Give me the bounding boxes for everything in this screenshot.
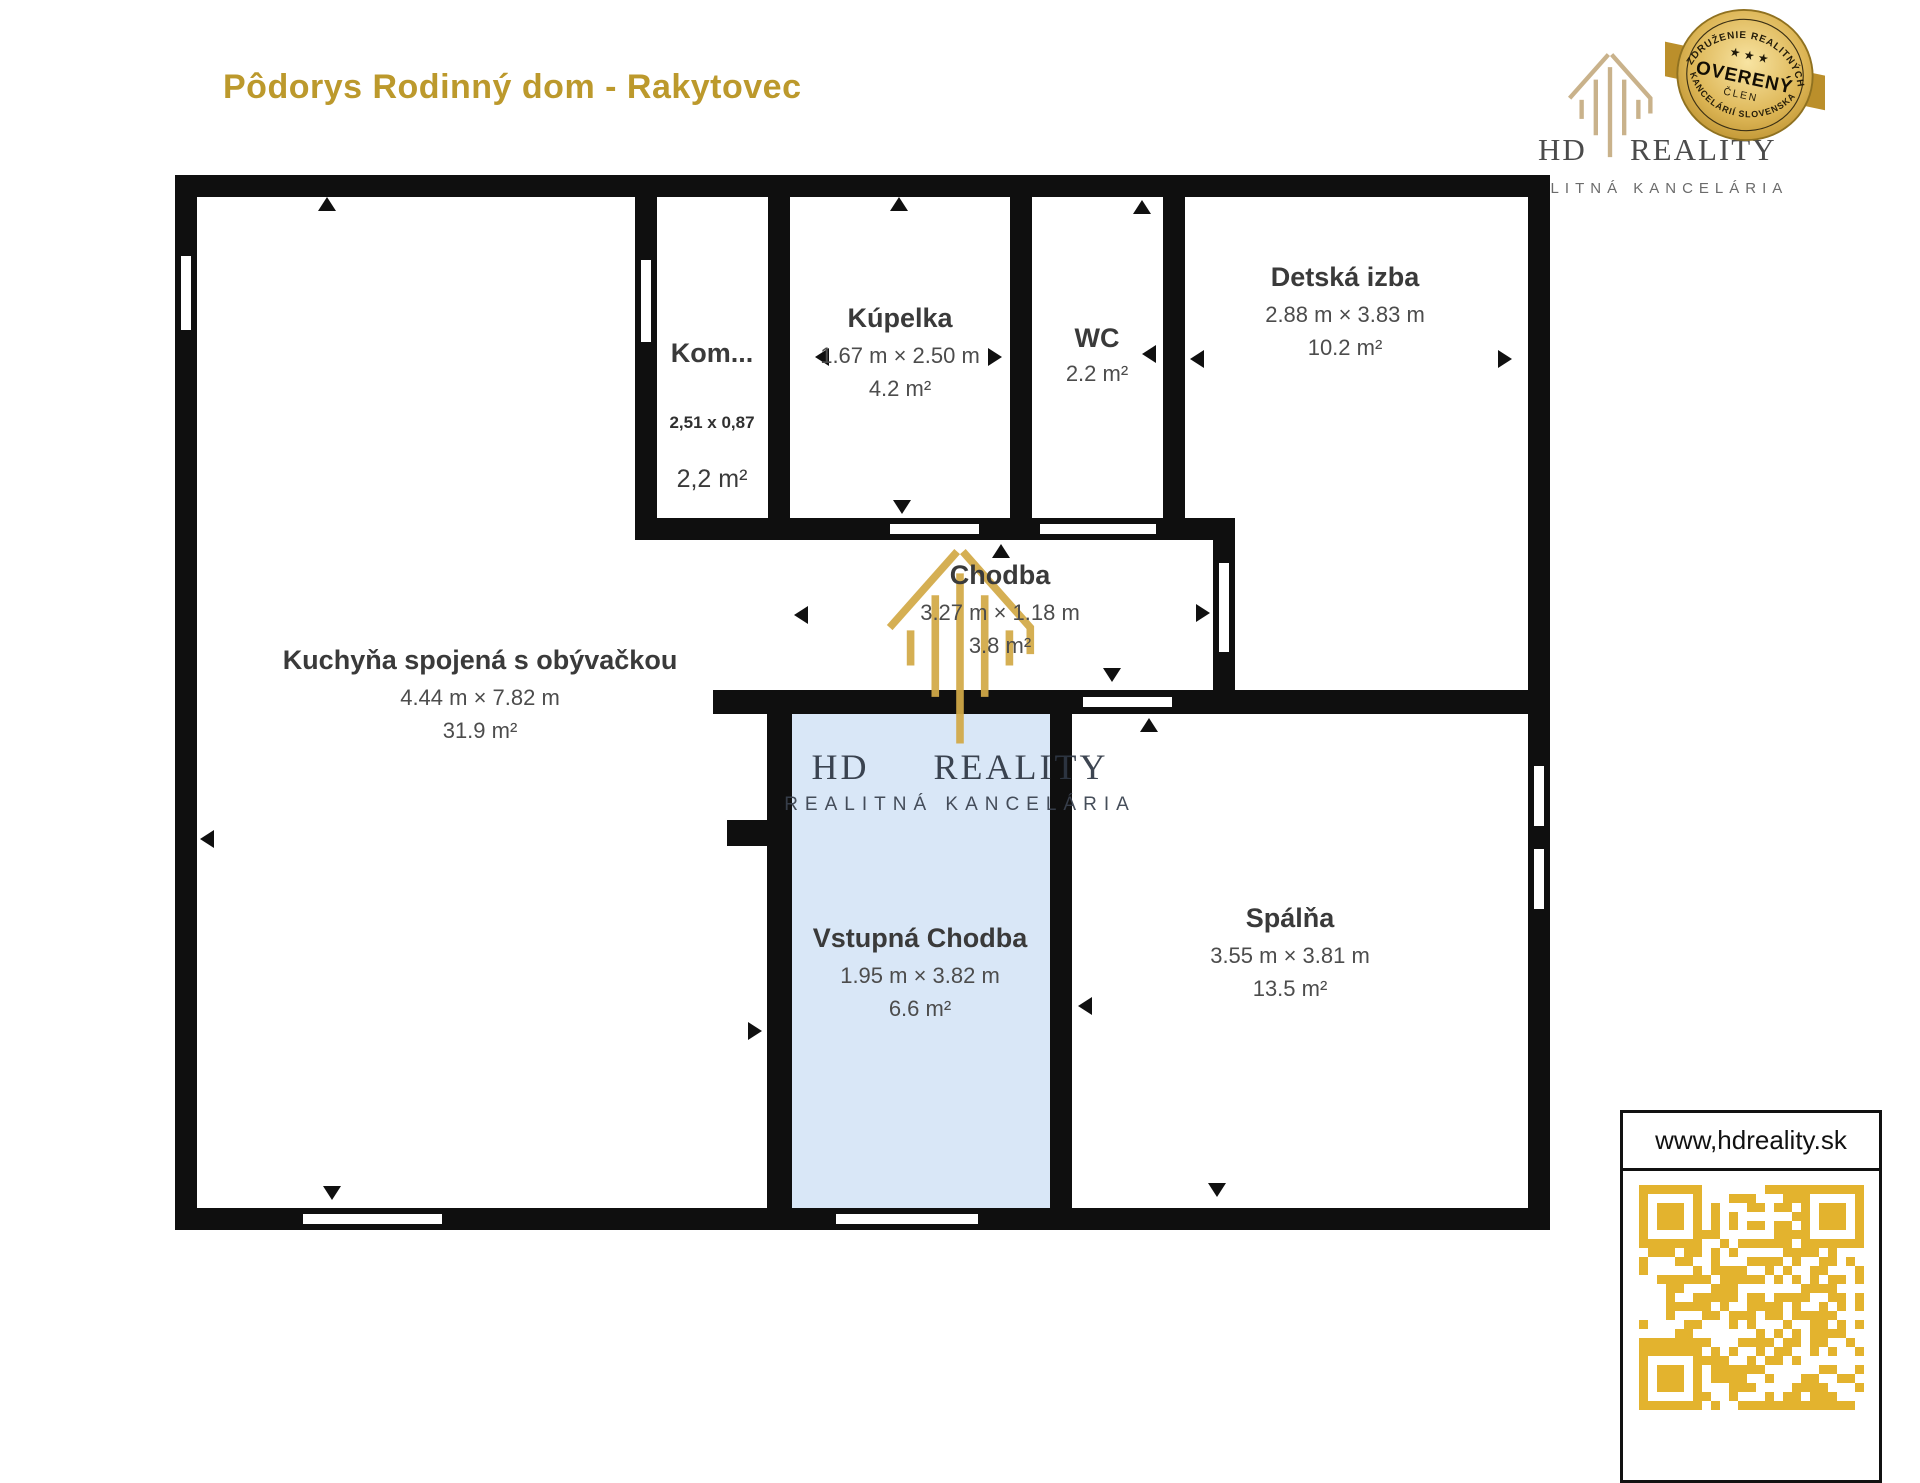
room-dimensions: 1.95 m × 3.82 m [813, 963, 1028, 989]
opening-marker-icon [200, 830, 214, 848]
room-area: 31.9 m² [283, 718, 678, 744]
room-name: Kúpelka [820, 303, 980, 334]
room-name: Spálňa [1210, 903, 1370, 934]
opening-marker-icon [1142, 345, 1156, 363]
wall [1163, 175, 1185, 540]
room-label-hallway: Chodba 3.27 m × 1.18 m 3.8 m² [920, 560, 1080, 659]
opening-marker-icon [988, 348, 1002, 366]
wall [768, 175, 790, 540]
opening-marker-icon [1078, 997, 1092, 1015]
room-dimensions: 3.27 m × 1.18 m [920, 600, 1080, 626]
room-dimensions: 2.88 m × 3.83 m [1265, 302, 1425, 328]
opening-marker-icon [1208, 1183, 1226, 1197]
room-name: Chodba [920, 560, 1080, 591]
opening-marker-icon [1133, 200, 1151, 214]
room-area: 2.2 m² [1066, 361, 1128, 387]
wall [175, 175, 1550, 197]
opening-marker-icon [1196, 604, 1210, 622]
room-label-pantry: Kom... 2,51 x 0,87 2,2 m² [669, 338, 754, 494]
room-label-kids-room: Detská izba 2.88 m × 3.83 m 10.2 m² [1265, 262, 1425, 361]
room-dimensions: 1.67 m × 2.50 m [820, 343, 980, 369]
opening-marker-icon [1498, 350, 1512, 368]
door-opening [638, 257, 654, 345]
watermark-text-hd: HD [812, 746, 870, 788]
room-name: Kom... [669, 338, 754, 369]
website-text: www,hdreality.sk [1623, 1113, 1879, 1171]
opening-marker-icon [890, 197, 908, 211]
room-area: 3.8 m² [920, 633, 1080, 659]
room-name: WC [1066, 323, 1128, 354]
qr-code [1623, 1185, 1879, 1410]
logo-text-hd: HD [1538, 132, 1587, 168]
door-opening [1037, 521, 1159, 537]
wall [1010, 175, 1032, 540]
room-label-bathroom: Kúpelka 1.67 m × 2.50 m 4.2 m² [820, 303, 980, 402]
room-dimensions: 2,51 x 0,87 [669, 413, 754, 433]
room-area: 13.5 m² [1210, 976, 1370, 1002]
watermark-text-reality: REALITY [934, 746, 1109, 788]
window [1531, 763, 1547, 829]
verified-member-badge-icon: ZDRUŽENIE REALITNÝCH ★ ★ ★ OVERENÝ ČLEN … [1665, 0, 1825, 150]
opening-marker-icon [893, 500, 911, 514]
door-opening [833, 1211, 981, 1227]
wall [635, 175, 657, 540]
room-area: 6.6 m² [813, 996, 1028, 1022]
page-title: Pôdorys Rodinný dom - Rakytovec [223, 68, 802, 107]
watermark-subtitle: REALITNÁ KANCELÁRIA [780, 794, 1140, 816]
floor-plan-page: Pôdorys Rodinný dom - Rakytovec HD REALI… [0, 0, 1920, 1483]
window [1531, 846, 1547, 912]
opening-marker-icon [318, 197, 336, 211]
room-dimensions: 4.44 m × 7.82 m [283, 685, 678, 711]
room-area: 2,2 m² [669, 465, 754, 494]
wall [175, 175, 197, 1230]
window [300, 1211, 445, 1227]
wall [727, 820, 792, 846]
window [178, 253, 194, 333]
door-opening [887, 521, 982, 537]
room-name: Detská izba [1265, 262, 1425, 293]
qr-panel: www,hdreality.sk [1620, 1110, 1882, 1483]
room-label-entry-hall: Vstupná Chodba 1.95 m × 3.82 m 6.6 m² [813, 923, 1028, 1022]
opening-marker-icon [748, 1022, 762, 1040]
room-dimensions: 3.55 m × 3.81 m [1210, 943, 1370, 969]
opening-marker-icon [1140, 718, 1158, 732]
room-name: Vstupná Chodba [813, 923, 1028, 954]
room-label-wc: WC 2.2 m² [1066, 323, 1128, 387]
door-opening [1216, 560, 1232, 655]
opening-marker-icon [323, 1186, 341, 1200]
room-label-kitchen: Kuchyňa spojená s obývačkou 4.44 m × 7.8… [283, 645, 678, 744]
room-area: 10.2 m² [1265, 335, 1425, 361]
room-label-bedroom: Spálňa 3.55 m × 3.81 m 13.5 m² [1210, 903, 1370, 1002]
room-name: Kuchyňa spojená s obývačkou [283, 645, 678, 676]
room-area: 4.2 m² [820, 376, 980, 402]
opening-marker-icon [1190, 350, 1204, 368]
